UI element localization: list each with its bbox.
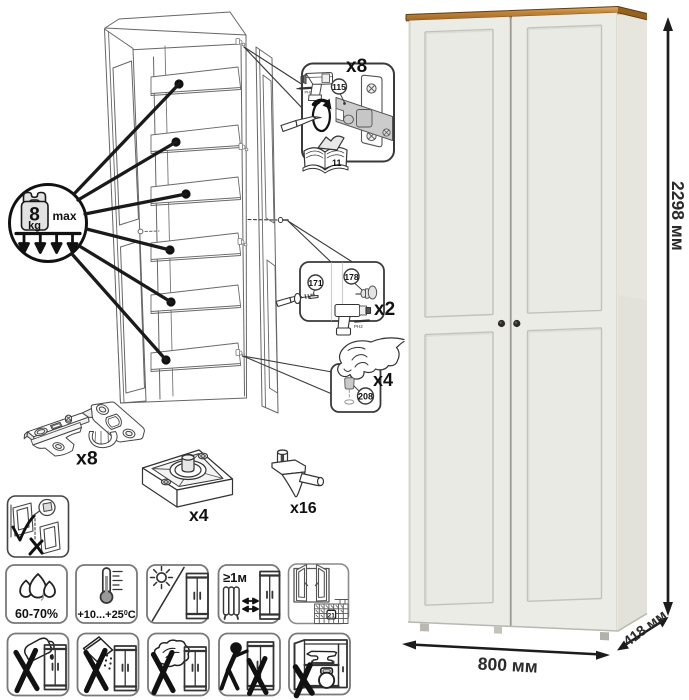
svg-text:max: max bbox=[53, 209, 77, 223]
svg-text:x4: x4 bbox=[373, 370, 393, 390]
svg-text:+10...+250С: +10...+250С bbox=[77, 609, 135, 621]
svg-text:x8: x8 bbox=[346, 56, 367, 77]
svg-text:x4: x4 bbox=[189, 505, 209, 525]
svg-text:115: 115 bbox=[332, 82, 346, 92]
svg-text:2298 мм: 2298 мм bbox=[668, 181, 688, 251]
svg-text:kg: kg bbox=[28, 220, 41, 232]
svg-text:11: 11 bbox=[332, 158, 342, 168]
svg-text:171: 171 bbox=[308, 278, 322, 288]
svg-text:PH2: PH2 bbox=[305, 90, 314, 95]
svg-text:x2: x2 bbox=[374, 299, 395, 320]
svg-text:178: 178 bbox=[344, 272, 358, 282]
svg-text:x16: x16 bbox=[290, 500, 317, 517]
svg-text:≥1м: ≥1м bbox=[223, 570, 247, 585]
svg-text:x8: x8 bbox=[76, 448, 98, 470]
svg-text:800 мм: 800 мм bbox=[477, 654, 538, 677]
svg-text:PH2: PH2 bbox=[354, 324, 363, 329]
svg-text:21: 21 bbox=[328, 612, 336, 619]
svg-text:60-70%: 60-70% bbox=[15, 607, 58, 621]
svg-text:208: 208 bbox=[358, 392, 373, 402]
